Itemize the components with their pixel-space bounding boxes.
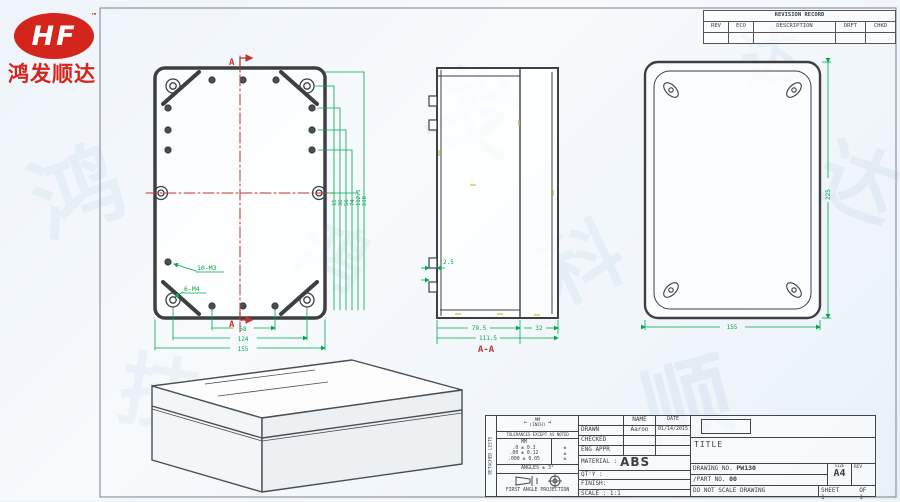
units-cell: ← MM (INCH) → — [497, 416, 578, 432]
revision-header-description: DESCRIPTION — [753, 22, 835, 32]
projection-symbols — [497, 474, 578, 488]
dim-width: 155 — [727, 324, 738, 331]
drawing-no-row: DRAWING NO. PW130 — [691, 464, 827, 475]
part-no-label: /PART NO. — [693, 476, 726, 483]
of-label: OF 1 — [859, 488, 873, 494]
svg-text:32: 32 — [535, 325, 543, 332]
size-cell: SIZE A4 — [828, 464, 852, 485]
isometric-view — [152, 360, 462, 492]
section-dim-lines — [437, 320, 558, 344]
section-dim-labels: 79.5 32 111.5 — [472, 325, 543, 342]
drawn-date: 01/14/2015 — [655, 426, 690, 435]
dim-labels-right: 15 36 56 74 112.5 210 — [332, 189, 368, 206]
section-title: A-A — [478, 345, 495, 355]
drawing-no-value: PW130 — [736, 464, 756, 472]
checked-row: CHECKED — [579, 436, 690, 446]
svg-text:124: 124 — [238, 336, 249, 343]
back-view: 225 155 — [645, 62, 832, 331]
svg-text:155: 155 — [238, 346, 249, 353]
tolerance-section: ← MM (INCH) → TOLERANCES EXCEPT AS NOTED… — [497, 416, 579, 496]
units-inch: (INCH) — [529, 423, 545, 428]
top-view: A A 15 36 56 74 112.5 210 — [146, 56, 368, 353]
title-block-logo-area — [691, 416, 875, 437]
size-value: A4 — [828, 469, 851, 479]
section-view: 2.5 79.5 32 111.5 A-A — [421, 68, 558, 355]
callout-m3: 10-M3 — [197, 264, 217, 272]
logo-brand-text: HF — [31, 21, 76, 52]
title-block-bottom-row: DO NOT SCALE DRAWING SHEET 1 OF 1 — [691, 485, 875, 496]
revision-table: REVISION RECORD REV ECO DESCRIPTION DRFT… — [703, 10, 896, 44]
material-row: MATERIAL : ABS — [579, 456, 690, 471]
callout-m4: 6-M4 — [184, 285, 200, 293]
tol-mark: ± — [552, 457, 578, 463]
material-value: ABS — [620, 456, 650, 470]
part-no-value: 00 — [729, 475, 737, 483]
section-label-top: A — [229, 58, 235, 68]
title-block-right: TITLE DRAWING NO. PW130 /PART NO. 00 SIZ… — [691, 416, 875, 496]
units-arrow-left-icon: ← — [524, 420, 528, 427]
checked-label: CHECKED — [579, 436, 623, 445]
svg-text:58: 58 — [239, 326, 247, 333]
svg-text:79.5: 79.5 — [472, 325, 487, 332]
dim-tab: 2.5 — [443, 259, 454, 266]
logo-placeholder-box — [701, 419, 751, 434]
tol-row: .000 ± 0.05 — [497, 457, 551, 463]
revision-header-chkd: CHKD — [865, 22, 895, 32]
revision-table-header-row: REV ECO DESCRIPTION DRFT CHKD — [704, 21, 895, 32]
revision-header-eco: ECO — [728, 22, 753, 32]
dim-height: 225 — [825, 189, 832, 200]
logo-company-name: 鸿发顺达 — [8, 58, 96, 88]
scale-row: SCALE : 1:1 — [579, 490, 690, 499]
signature-header-row: NAME DATE — [579, 416, 690, 426]
revision-table-title: REVISION RECORD — [704, 11, 895, 21]
units-arrow-right-icon: → — [548, 420, 552, 427]
rev-cell: REV — [852, 464, 875, 485]
first-angle-cone-icon — [514, 475, 540, 487]
trademark-symbol: ™ — [92, 12, 96, 20]
svg-text:111.5: 111.5 — [479, 335, 497, 342]
title-block-side-strip: DETACHED LISTS — [486, 416, 497, 496]
dim-labels-bottom: 58 124 155 — [238, 326, 249, 353]
title-block: DETACHED LISTS ← MM (INCH) → TOLERANCES … — [485, 415, 876, 497]
qty-row: QT'Y : — [579, 471, 690, 481]
sheet-label: SHEET 1 — [821, 488, 845, 494]
do-not-scale-note: DO NOT SCALE DRAWING — [691, 486, 818, 496]
title-block-middle: NAME DATE DRAWN Aaron 01/14/2015 CHECKED… — [579, 416, 691, 496]
part-no-row: /PART NO. 00 — [691, 475, 827, 485]
drawing-no-label: DRAWING NO. — [693, 465, 733, 472]
date-header: DATE — [655, 416, 690, 425]
finish-row: FINISH: — [579, 480, 690, 490]
hinge-tabs — [429, 96, 437, 292]
material-label: MATERIAL : — [581, 459, 617, 466]
revision-header-drft: DRFT — [835, 22, 865, 32]
drawing-number-section: DRAWING NO. PW130 /PART NO. 00 SIZE A4 R… — [691, 463, 875, 485]
eng-appr-label: ENG APPR — [579, 446, 623, 455]
drawn-row: DRAWN Aaron 01/14/2015 — [579, 426, 690, 436]
drawn-name: Aaron — [623, 426, 655, 435]
first-angle-target-icon — [548, 474, 562, 488]
title-cell: TITLE — [691, 437, 875, 463]
tolerance-grid: MM .0 ± 0.3 .00 ± 0.12 .000 ± 0.05 ± ± ± — [497, 439, 578, 465]
projection-label: FIRST ANGLE PROJECTION — [497, 488, 578, 496]
angles-tolerance: ANGLES ± 3° — [497, 465, 578, 474]
name-header: NAME — [623, 416, 655, 425]
revision-header-rev: REV — [704, 22, 728, 32]
side-strip-label: DETACHED LISTS — [488, 420, 493, 492]
drawn-label: DRAWN — [579, 426, 623, 435]
logo-oval: HF — [14, 13, 94, 59]
tolerances-note: TOLERANCES EXCEPT AS NOTED — [497, 432, 578, 440]
revision-table-empty-row — [704, 32, 895, 43]
svg-text:210: 210 — [362, 196, 368, 206]
section-label-bottom: A — [229, 320, 235, 330]
